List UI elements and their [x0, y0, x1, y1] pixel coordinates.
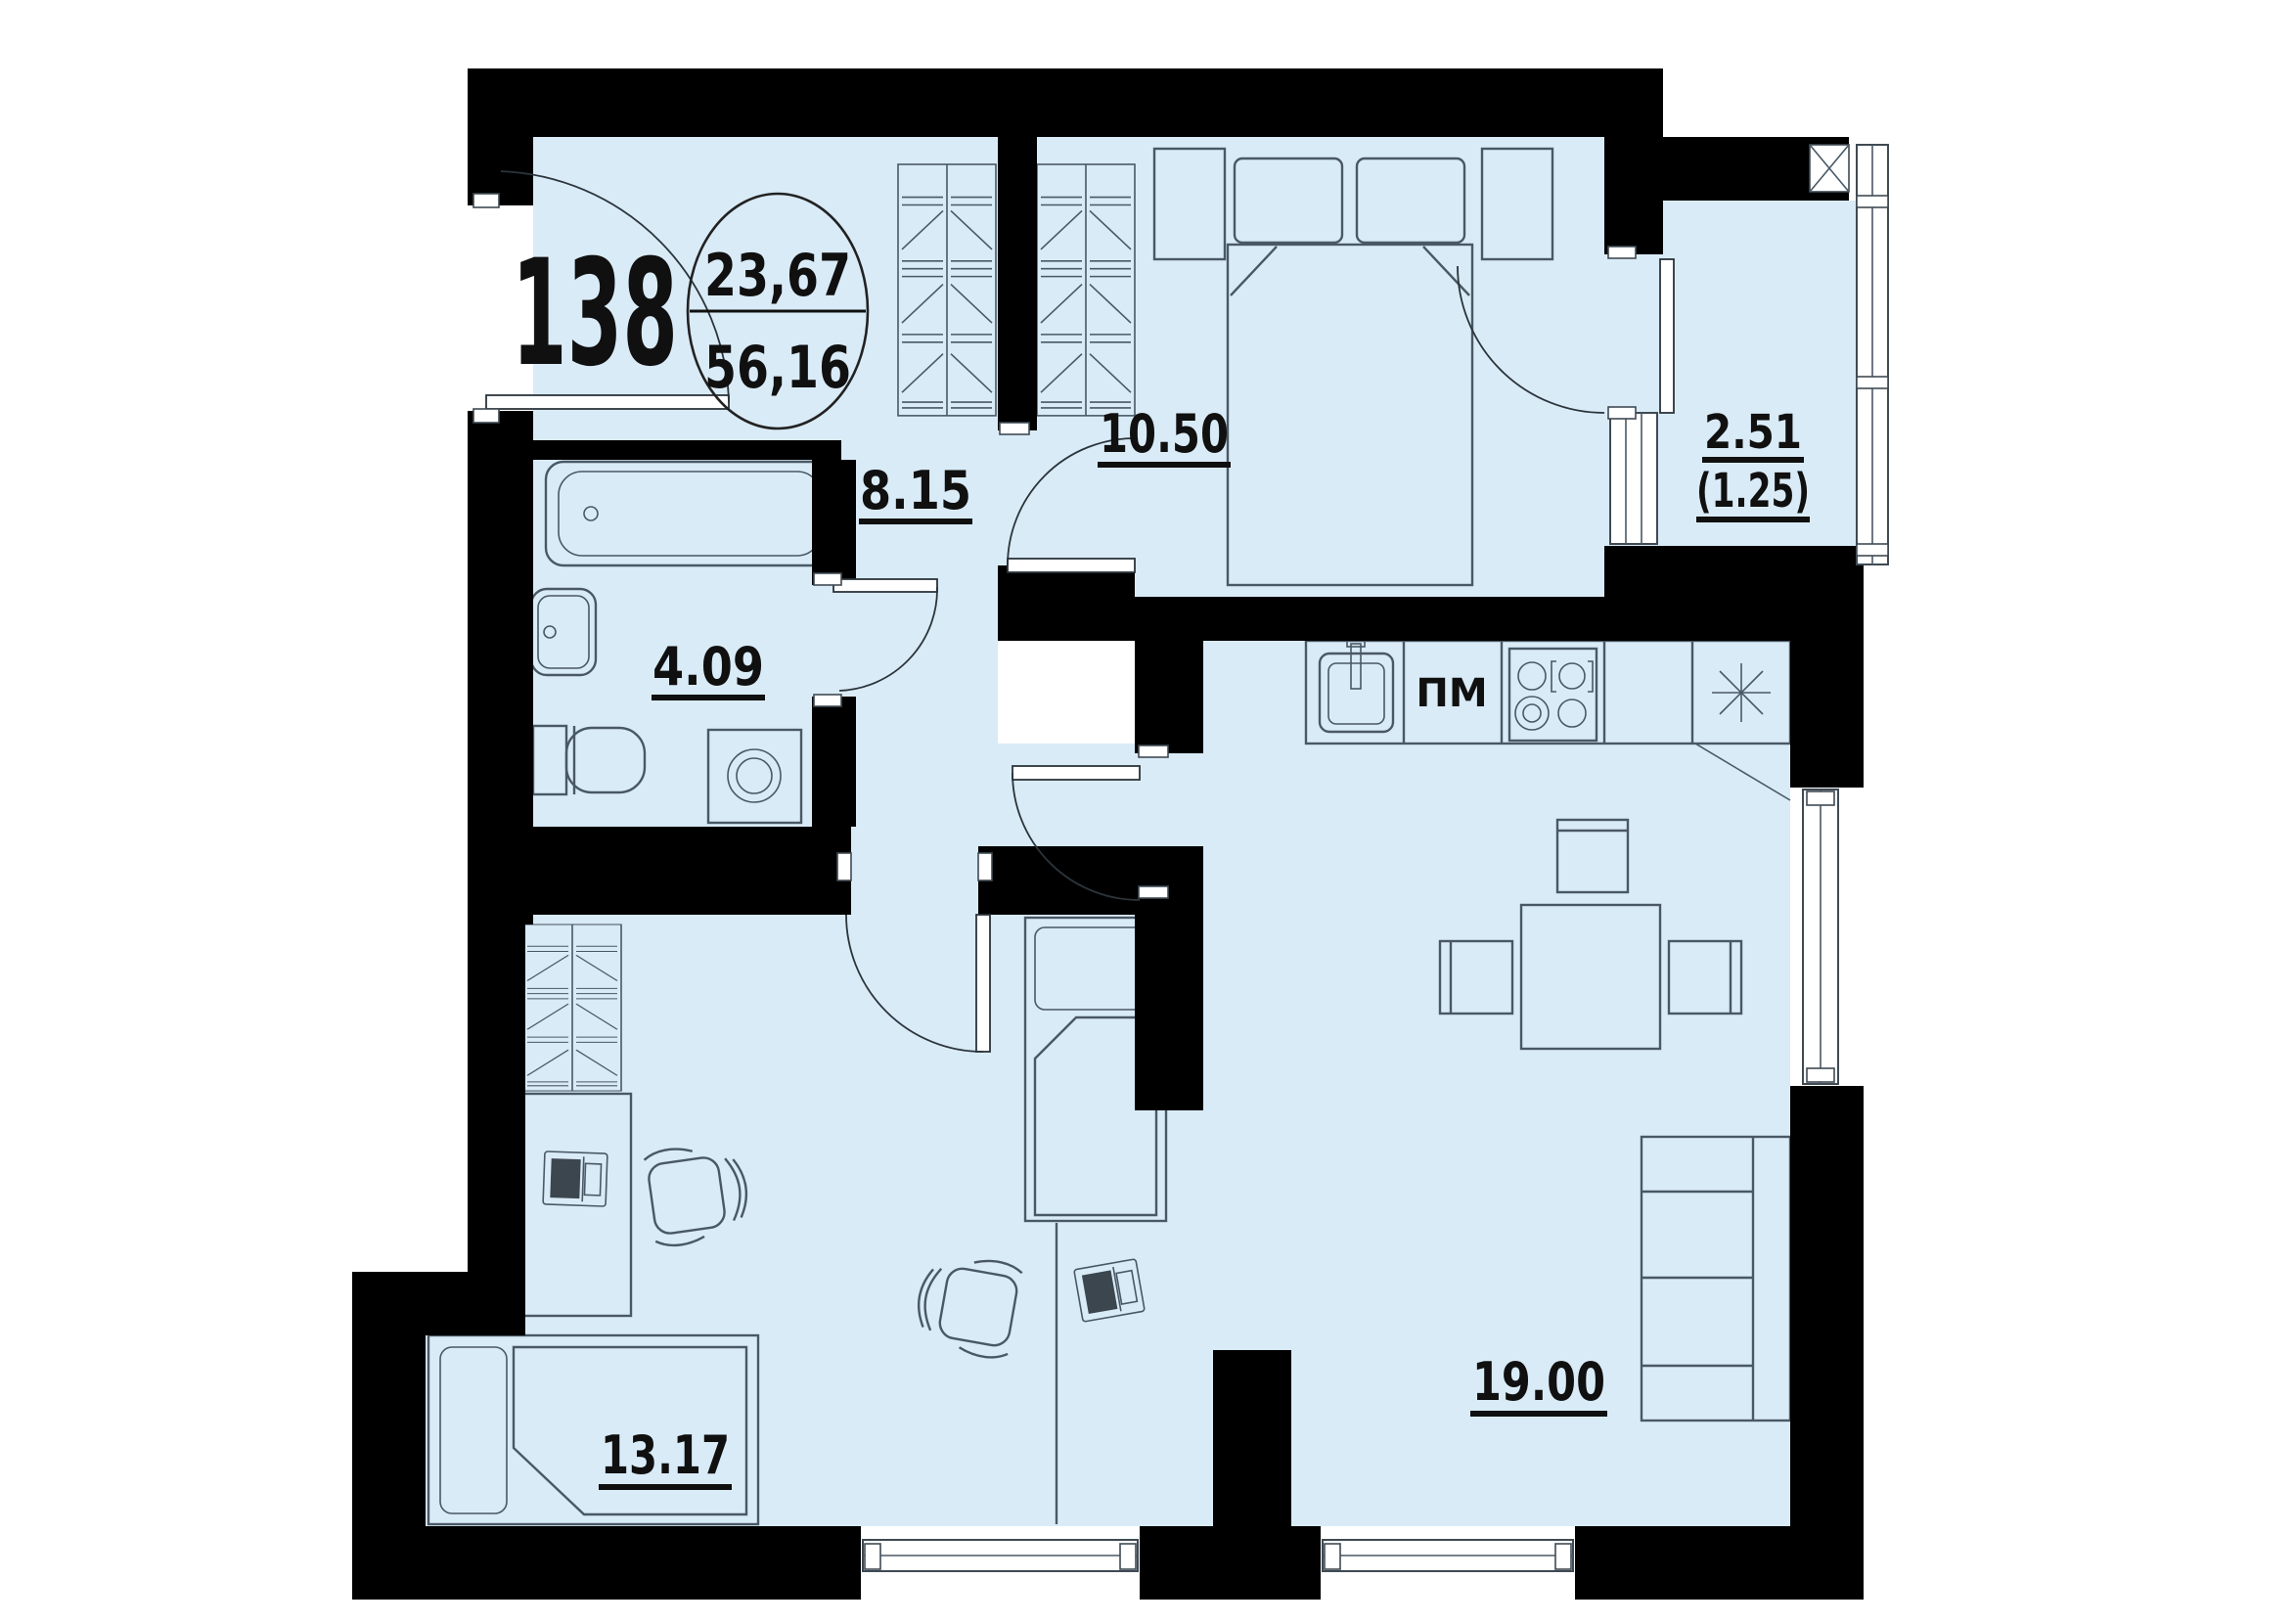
- svg-text:4.09: 4.09: [652, 636, 764, 698]
- apartment-number: 138: [512, 229, 678, 399]
- svg-text:8.15: 8.15: [860, 460, 971, 521]
- svg-text:13.17: 13.17: [601, 1424, 730, 1486]
- room-label-balcony: 2.51 (1.25): [1696, 405, 1810, 519]
- balcony-glazing: [1857, 145, 1888, 564]
- svg-text:(1.25): (1.25): [1696, 464, 1810, 519]
- room-label-bathroom: 4.09: [652, 636, 765, 698]
- room-label-hallway: 8.15: [859, 460, 972, 521]
- bedroom-balcony-window: [1610, 413, 1657, 544]
- window-right: [1803, 789, 1838, 1084]
- room-label-kitchen-living: 19.00: [1470, 1351, 1607, 1414]
- svg-text:10.50: 10.50: [1100, 403, 1229, 465]
- vent-shaft: [1810, 145, 1849, 192]
- floor-plan: 138 23,67 56,16 8.15 4.09 10.50 13.17 19…: [0, 0, 2294, 1624]
- living-area-value: 23,67: [704, 242, 851, 310]
- fridge-icon: [1712, 663, 1771, 722]
- total-area-value: 56,16: [704, 334, 851, 402]
- window-bottom-left: [863, 1540, 1138, 1571]
- svg-text:ПМ: ПМ: [1416, 671, 1487, 716]
- room-label-bedroom: 10.50: [1098, 403, 1231, 465]
- dishwasher-label: ПМ: [1416, 671, 1487, 716]
- window-bottom-right: [1323, 1540, 1573, 1571]
- svg-text:19.00: 19.00: [1472, 1351, 1605, 1413]
- svg-text:2.51: 2.51: [1704, 405, 1802, 460]
- room-label-children-room: 13.17: [599, 1424, 732, 1487]
